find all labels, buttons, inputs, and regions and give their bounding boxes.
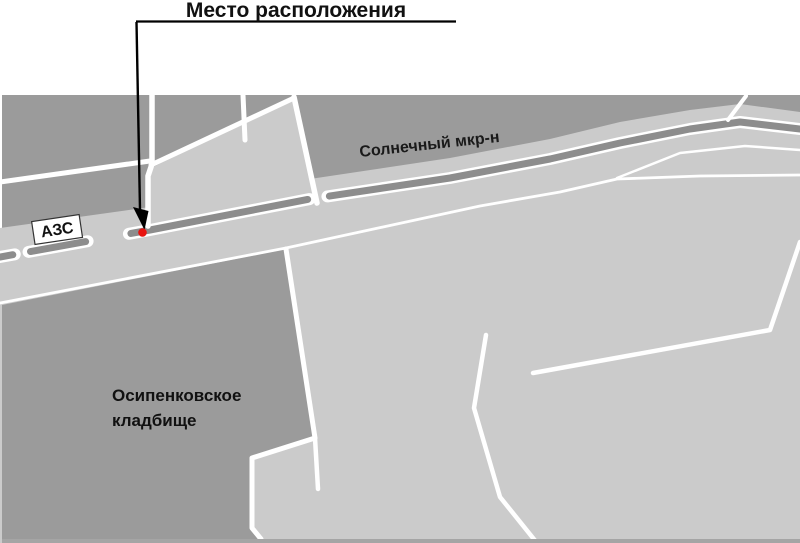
- location-map-page: Солнечный мкр-н Осипенковское кладбище А…: [0, 0, 800, 543]
- location-marker-dot: [138, 228, 147, 237]
- page-title: Место расположения: [186, 0, 406, 22]
- map-bottom-border: [2, 539, 800, 543]
- dead-end-stub: [315, 438, 318, 489]
- map-canvas: Солнечный мкр-н Осипенковское кладбище А…: [0, 0, 800, 543]
- cemetery-label-line2: кладбище: [112, 411, 197, 430]
- street-vertical-2-stub: [243, 95, 245, 140]
- cemetery-label-line1: Осипенковское: [112, 386, 241, 405]
